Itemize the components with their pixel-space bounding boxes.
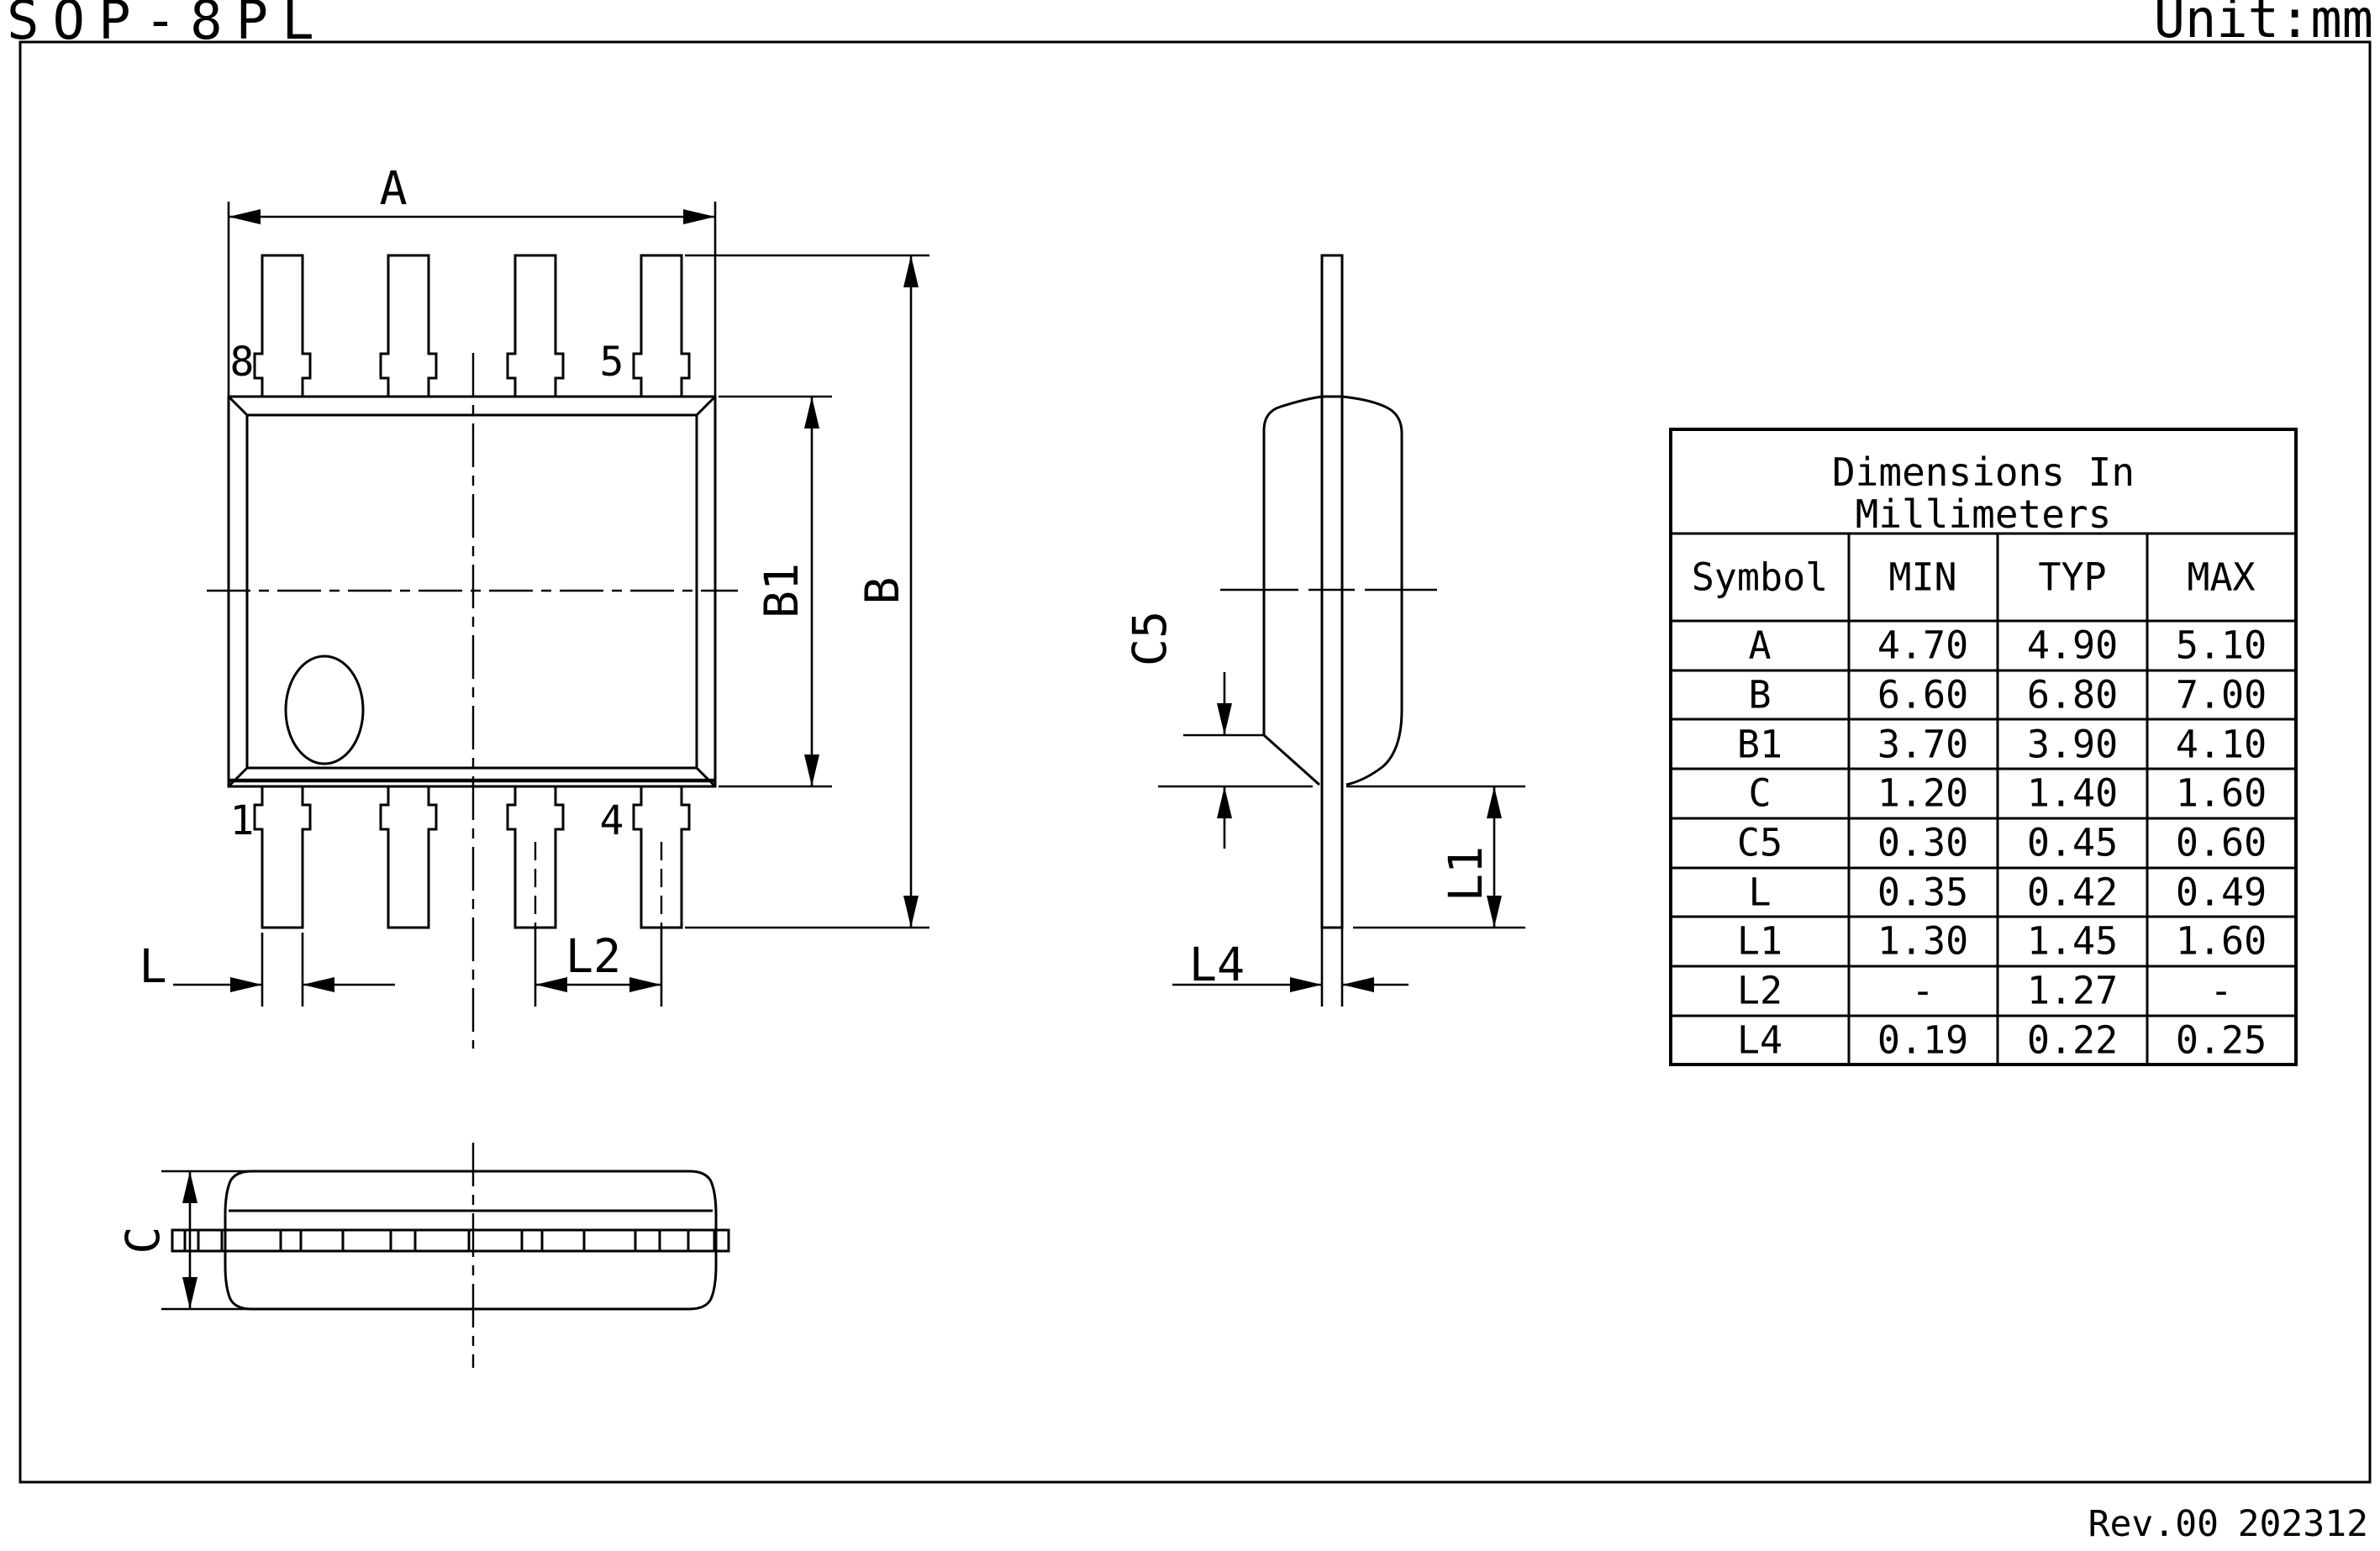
dim-label-L4: L4 (1189, 938, 1245, 991)
pin-number-4: 4 (600, 797, 624, 844)
cell-min: 1.30 (1877, 919, 1968, 964)
cell-max: 4.10 (2176, 723, 2267, 767)
cell-min: 0.19 (1877, 1018, 1968, 1063)
cell-max: 5.10 (2176, 623, 2267, 668)
cell-typ: 6.80 (2027, 673, 2118, 718)
dimensions-table: Dimensions In Millimeters Symbol MIN TYP… (1671, 429, 2296, 1065)
cell-max: 0.49 (2176, 870, 2267, 915)
cell-typ: 1.45 (2027, 919, 2118, 964)
cell-symbol: B1 (1737, 723, 1782, 767)
cell-typ: 3.90 (2027, 723, 2118, 767)
column-header-symbol: Symbol (1692, 555, 1829, 600)
table-title-line2: Millimeters (1856, 492, 2112, 537)
cell-symbol: L4 (1737, 1018, 1782, 1063)
cell-min: 4.70 (1877, 623, 1968, 668)
revision-label: Rev.00 (2088, 1503, 2219, 1545)
dim-label-B1: B1 (755, 563, 808, 618)
cell-symbol: L (1748, 870, 1771, 915)
cell-symbol: C5 (1737, 821, 1782, 865)
cell-typ: 1.27 (2027, 969, 2118, 1013)
cell-symbol: A (1748, 623, 1771, 668)
cell-min: 0.30 (1877, 821, 1968, 865)
cell-min: 1.20 (1877, 771, 1968, 816)
cell-typ: 0.22 (2027, 1018, 2118, 1063)
pin-number-8: 8 (230, 339, 255, 386)
cell-symbol: C (1748, 771, 1771, 816)
dim-label-L: L (139, 939, 166, 993)
cell-symbol: B (1748, 673, 1771, 718)
dim-label-A: A (379, 161, 407, 215)
cell-min: 0.35 (1877, 870, 1968, 915)
dim-label-C5: C5 (1123, 611, 1177, 666)
cell-min: 6.60 (1877, 673, 1968, 718)
cell-typ: 1.40 (2027, 771, 2118, 816)
cell-max: 1.60 (2176, 919, 2267, 964)
dim-label-L1: L1 (1439, 846, 1493, 902)
cell-max: 7.00 (2176, 673, 2267, 718)
cell-typ: 0.45 (2027, 821, 2118, 865)
cell-symbol: L1 (1737, 919, 1782, 964)
cell-max: 0.60 (2176, 821, 2267, 865)
column-header-min: MIN (1888, 555, 1956, 600)
cell-typ: 0.42 (2027, 870, 2118, 915)
pin-number-5: 5 (600, 339, 624, 386)
cell-max: 1.60 (2176, 771, 2267, 816)
table-title-line1: Dimensions In (1832, 450, 2135, 495)
column-header-max: MAX (2187, 555, 2255, 600)
pin-number-1: 1 (230, 797, 255, 844)
page-title: SOP-8PL (7, 0, 328, 52)
cell-max: 0.25 (2176, 1018, 2267, 1063)
column-header-typ: TYP (2038, 555, 2106, 600)
drawing-page: SOP-8PL Unit:mm 8 5 (0, 0, 2380, 1551)
drawing-canvas: SOP-8PL Unit:mm 8 5 (0, 0, 2380, 1551)
dim-label-L2: L2 (566, 929, 621, 983)
dim-label-B: B (856, 576, 909, 604)
dim-label-C: C (116, 1226, 170, 1254)
cell-max: - (2209, 969, 2232, 1013)
cell-min: - (1911, 969, 1934, 1013)
cell-min: 3.70 (1877, 723, 1968, 767)
cell-typ: 4.90 (2027, 623, 2118, 668)
date-label: 202312 (2238, 1503, 2368, 1545)
cell-symbol: L2 (1737, 969, 1782, 1013)
